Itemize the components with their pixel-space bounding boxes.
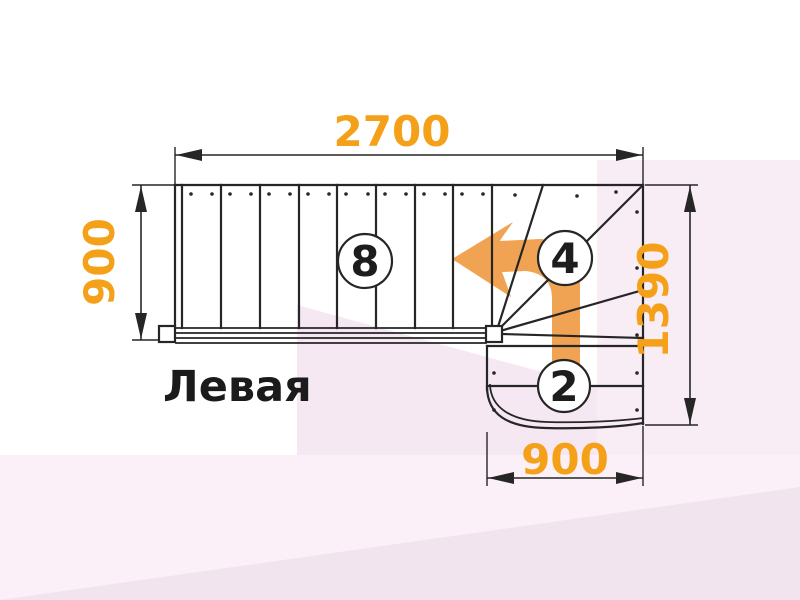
- winder-count: 4: [550, 234, 579, 283]
- dim-label-left: 900: [75, 218, 124, 306]
- dim-label-right: 1390: [629, 242, 678, 359]
- newel-post-left: [159, 326, 175, 342]
- dim-label-top: 2700: [334, 107, 451, 156]
- newel-post-right: [486, 326, 502, 342]
- badge-winders: 4: [538, 231, 592, 285]
- plan-title: Левая: [163, 362, 312, 412]
- badge-main-flight: 8: [338, 234, 392, 288]
- staircase-plan-drawing: 8 4 2 2700 900: [0, 0, 800, 600]
- dim-label-bottom: 900: [521, 435, 609, 484]
- main-flight-count: 8: [350, 237, 379, 286]
- lower-flight-count: 2: [549, 362, 578, 411]
- plan-canvas: 8 4 2 2700 900: [0, 0, 800, 600]
- badge-lower-flight: 2: [538, 360, 590, 412]
